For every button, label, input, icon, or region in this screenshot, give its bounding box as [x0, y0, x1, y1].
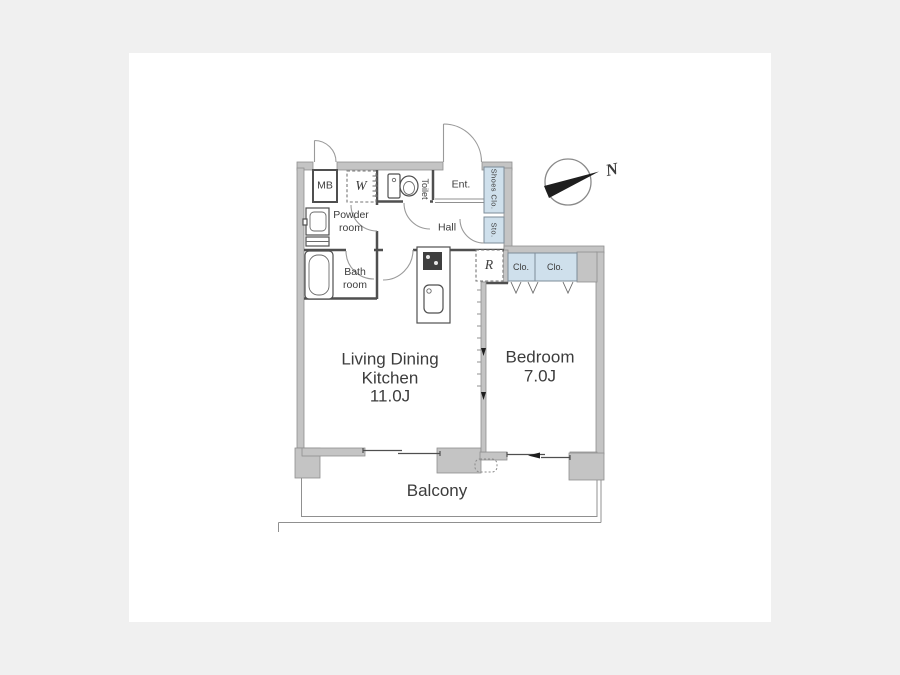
label-closet-left: Clo. — [513, 262, 529, 272]
meter-box-door — [315, 141, 337, 163]
sliding-partition — [477, 282, 486, 452]
label-powder-room-line2: room — [333, 222, 369, 235]
kitchen-counter-icon — [417, 247, 450, 323]
label-storage: Sto. — [490, 223, 499, 238]
label-closet-right: Clo. — [547, 262, 563, 272]
label-powder-room: Powder room — [333, 209, 369, 235]
floor-plan-drawing — [0, 0, 900, 675]
label-refrigerator: R — [485, 257, 493, 273]
label-bath-room-line2: room — [343, 279, 367, 292]
label-powder-room-line1: Powder — [333, 209, 369, 222]
toilet-door — [404, 203, 430, 229]
label-ldk-line2: Kitchen — [341, 369, 438, 388]
label-meter-box: MB — [317, 180, 333, 193]
vanity-sink-icon — [303, 208, 329, 246]
toilet-icon — [388, 174, 418, 198]
label-balcony: Balcony — [407, 482, 467, 501]
entrance-step-line — [435, 199, 484, 203]
label-bedroom-size: 7.0J — [506, 367, 575, 386]
label-hall: Hall — [438, 222, 456, 235]
label-ldk-line1: Living Dining — [341, 350, 438, 369]
label-bath-room-line1: Bath — [343, 266, 367, 279]
label-washer: W — [355, 178, 366, 194]
compass — [544, 159, 599, 205]
label-ldk: Living Dining Kitchen 11.0J — [341, 350, 438, 406]
label-bedroom: Bedroom 7.0J — [506, 349, 575, 386]
floor-plan-page: { "colors": { "bg": "#f0f0f0", "canvas":… — [0, 0, 900, 675]
label-bath-room: Bath room — [343, 266, 367, 292]
storage-door — [460, 219, 484, 243]
ldk-door — [383, 250, 413, 280]
label-bedroom-name: Bedroom — [506, 349, 575, 368]
label-ldk-size: 11.0J — [341, 387, 438, 406]
label-toilet: Toilet — [420, 178, 430, 199]
closet-door-chevrons — [511, 282, 573, 293]
ldk-window — [363, 448, 440, 456]
bedroom-window — [507, 452, 570, 460]
entrance-door — [444, 124, 482, 162]
label-shoes-closet: Shoes Clo. — [490, 169, 499, 210]
label-entrance: Ent. — [452, 179, 471, 192]
bathtub-icon — [305, 251, 333, 299]
